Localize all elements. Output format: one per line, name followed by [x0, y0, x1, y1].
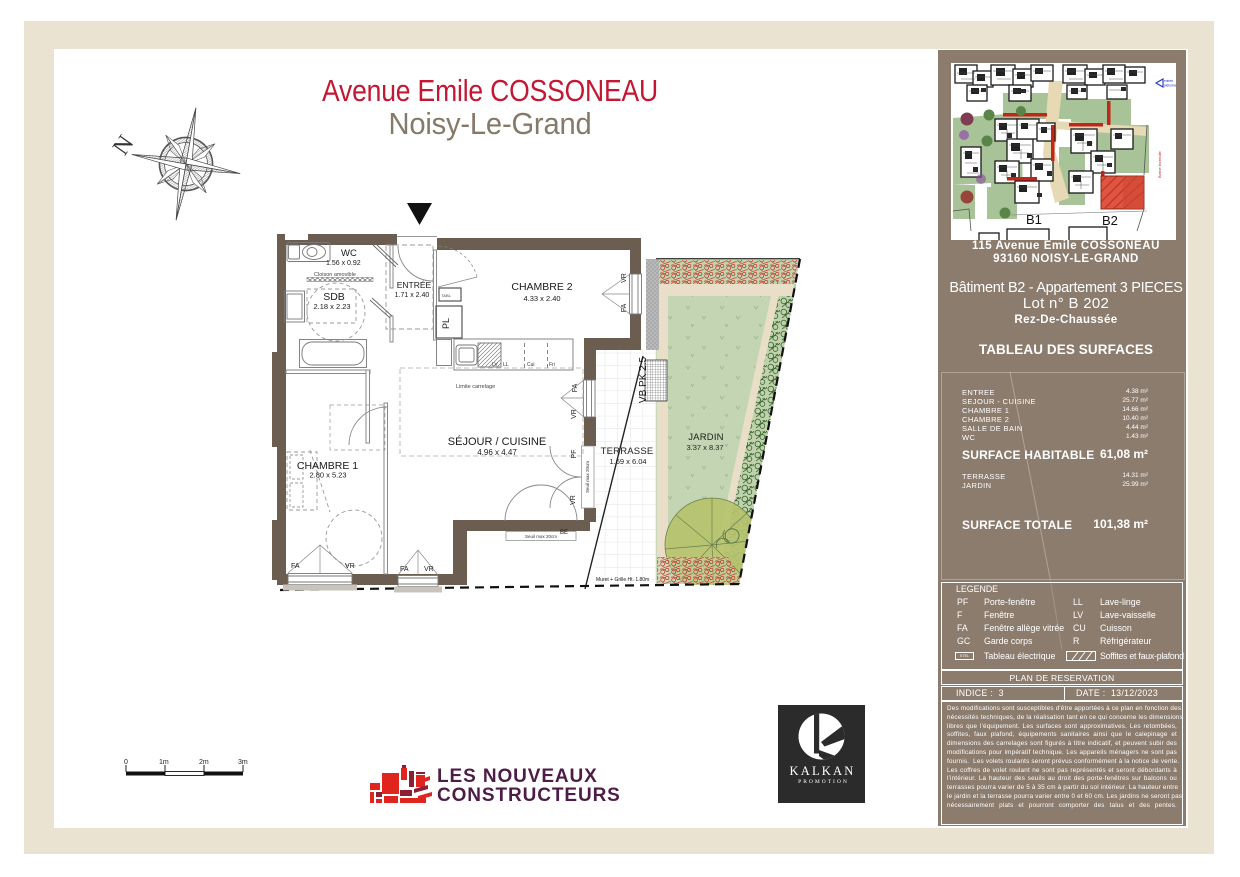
- svg-text:WC: WC: [341, 248, 357, 259]
- svg-text:VR: VR: [570, 495, 577, 505]
- svg-text:2.18 x 2.23: 2.18 x 2.23: [313, 302, 350, 311]
- svg-text:FA: FA: [291, 563, 300, 570]
- svg-text:PF: PF: [571, 450, 578, 459]
- svg-text:Fri: Fri: [549, 362, 555, 368]
- svg-text:VB PK 2.5: VB PK 2.5: [638, 356, 649, 403]
- svg-text:VR: VR: [345, 563, 355, 570]
- svg-text:4.96 x 4.47: 4.96 x 4.47: [477, 448, 517, 457]
- svg-text:FA: FA: [400, 566, 409, 573]
- svg-text:Borne incendie: Borne incendie: [1157, 151, 1162, 178]
- svg-text:VR: VR: [571, 409, 578, 419]
- svg-text:1.56 x 0.92: 1.56 x 0.92: [326, 260, 361, 267]
- svg-text:0: 0: [124, 759, 128, 766]
- svg-text:VR: VR: [621, 273, 628, 283]
- svg-text:FA: FA: [621, 303, 628, 312]
- svg-text:CHAMBRE 2: CHAMBRE 2: [511, 281, 572, 293]
- svg-text:Seuil max 20cm: Seuil max 20cm: [585, 461, 590, 493]
- svg-text:Cloison amovible: Cloison amovible: [314, 272, 356, 278]
- svg-text:piétonne: piétonne: [1164, 84, 1176, 88]
- svg-text:PL: PL: [441, 318, 451, 329]
- svg-text:FA: FA: [572, 383, 579, 392]
- svg-text:Cui: Cui: [527, 362, 535, 368]
- svg-text:Seuil max 20cm: Seuil max 20cm: [525, 534, 557, 539]
- svg-text:VR: VR: [424, 566, 434, 573]
- svg-text:4.33 x 2.40: 4.33 x 2.40: [523, 294, 560, 303]
- svg-text:JARDIN: JARDIN: [688, 432, 724, 443]
- svg-text:Muret + Grille Ht. 1.80m: Muret + Grille Ht. 1.80m: [596, 577, 649, 583]
- svg-text:1m: 1m: [159, 759, 169, 766]
- svg-text:entrée: entrée: [1164, 79, 1173, 83]
- svg-text:ENTRÉE: ENTRÉE: [397, 280, 432, 290]
- svg-text:B2: B2: [1102, 213, 1118, 228]
- svg-text:LV: LV: [492, 362, 498, 368]
- svg-text:2.80 x 5.23: 2.80 x 5.23: [309, 471, 346, 480]
- svg-text:BE: BE: [560, 530, 568, 536]
- svg-text:TERRASSE: TERRASSE: [601, 446, 654, 457]
- svg-text:TABL: TABL: [441, 293, 451, 298]
- svg-text:B1: B1: [1026, 212, 1042, 227]
- svg-text:3m: 3m: [238, 759, 248, 766]
- svg-text:2m: 2m: [199, 759, 209, 766]
- svg-text:N: N: [108, 131, 139, 160]
- svg-text:SÉJOUR / CUISINE: SÉJOUR / CUISINE: [448, 435, 546, 448]
- svg-text:3.37 x 8.37: 3.37 x 8.37: [686, 443, 723, 452]
- svg-text:1.71 x 2.40: 1.71 x 2.40: [395, 292, 430, 299]
- svg-text:Limite carrelage: Limite carrelage: [456, 384, 495, 390]
- svg-text:1.69 x 6.04: 1.69 x 6.04: [609, 457, 646, 466]
- svg-text:LL: LL: [503, 362, 509, 368]
